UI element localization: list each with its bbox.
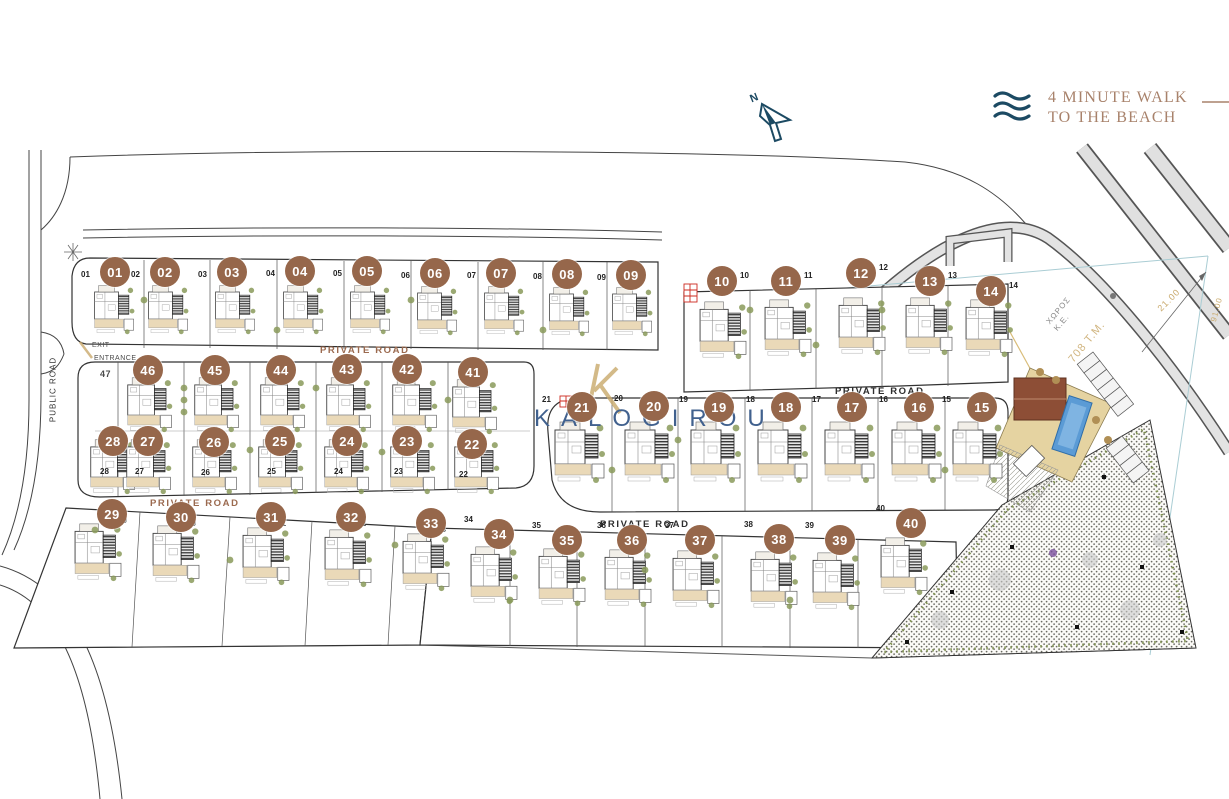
exit-label: EXIT <box>92 342 110 349</box>
plot-badge-14[interactable]: 1414 <box>976 276 1006 306</box>
plot-badge-32[interactable]: 3232 <box>336 502 366 532</box>
plot-badge-07[interactable]: 0707 <box>486 258 516 288</box>
entrance-label: ENTRANCE <box>94 355 137 362</box>
plot-badge-27[interactable]: 2727 <box>133 426 163 456</box>
plot-badge-12[interactable]: 1212 <box>846 258 876 288</box>
plot-badge-11[interactable]: 1111 <box>771 266 801 296</box>
plot-badge-44[interactable]: 4444 <box>266 355 296 385</box>
plot-badge-24[interactable]: 2424 <box>332 426 362 456</box>
plot-badge-37[interactable]: 3737 <box>685 525 715 555</box>
north-arrow: N <box>740 84 804 148</box>
plot-badge-16[interactable]: 1616 <box>904 392 934 422</box>
north-label: N <box>748 91 760 105</box>
plot-badge-38[interactable]: 3838 <box>764 524 794 554</box>
plot-badge-22[interactable]: 2222 <box>457 429 487 459</box>
plot-badge-18[interactable]: 1818 <box>771 392 801 422</box>
plot-badge-05[interactable]: 0505 <box>352 256 382 286</box>
plot-badge-34[interactable]: 3434 <box>484 519 514 549</box>
plot-badge-15[interactable]: 1515 <box>967 392 997 422</box>
plot-badge-46[interactable]: 4646 <box>133 355 163 385</box>
plot-47-number[interactable]: 47 <box>100 369 111 379</box>
plot-badge-29[interactable]: 2929 <box>97 499 127 529</box>
public-road-label: PUBLIC ROAD <box>49 355 58 425</box>
site-plan: N 4 MINUTE WALK TO THE BEACH KALOGIROU P… <box>0 0 1229 799</box>
plot-badge-17[interactable]: 1717 <box>837 392 867 422</box>
plot-badge-09[interactable]: 0909 <box>616 260 646 290</box>
plot-badge-31[interactable]: 3131 <box>256 502 286 532</box>
plot-badge-41[interactable]: 4141 <box>458 357 488 387</box>
waves-icon <box>992 88 1034 128</box>
walk-line2: TO THE BEACH <box>1048 108 1188 128</box>
plot-badge-06[interactable]: 0606 <box>420 258 450 288</box>
plot-badge-21[interactable]: 2121 <box>567 392 597 422</box>
plot-badge-39[interactable]: 3939 <box>825 525 855 555</box>
walk-line1: 4 MINUTE WALK <box>1048 88 1188 108</box>
plot-badge-28[interactable]: 2828 <box>98 426 128 456</box>
plot-badge-23[interactable]: 2323 <box>392 426 422 456</box>
plot-badge-02[interactable]: 0202 <box>150 257 180 287</box>
plot-badge-33[interactable]: 3333 <box>416 508 446 538</box>
plot-badge-04[interactable]: 0404 <box>285 256 315 286</box>
plot-badge-43[interactable]: 4343 <box>332 354 362 384</box>
arrow-right-icon <box>1200 92 1229 112</box>
plot-badge-20[interactable]: 2020 <box>639 391 669 421</box>
plot-badge-25[interactable]: 2525 <box>265 426 295 456</box>
plot-badge-13[interactable]: 1313 <box>915 266 945 296</box>
plot-badge-36[interactable]: 3636 <box>617 525 647 555</box>
plot-badge-01[interactable]: 0101 <box>100 257 130 287</box>
beach-legend: 4 MINUTE WALK TO THE BEACH <box>992 88 1229 128</box>
plot-badge-35[interactable]: 3535 <box>552 525 582 555</box>
plot-badge-08[interactable]: 0808 <box>552 259 582 289</box>
plot-badge-03[interactable]: 0303 <box>217 257 247 287</box>
plot-badge-30[interactable]: 3030 <box>166 502 196 532</box>
compass-star <box>64 243 82 261</box>
plot-badge-45[interactable]: 4545 <box>200 355 230 385</box>
plot-badge-26[interactable]: 2626 <box>199 427 229 457</box>
plot-badge-42[interactable]: 4242 <box>392 354 422 384</box>
plot-badge-40[interactable]: 4040 <box>896 508 926 538</box>
plot-badge-10[interactable]: 1010 <box>707 266 737 296</box>
plot-badge-19[interactable]: 1919 <box>704 392 734 422</box>
